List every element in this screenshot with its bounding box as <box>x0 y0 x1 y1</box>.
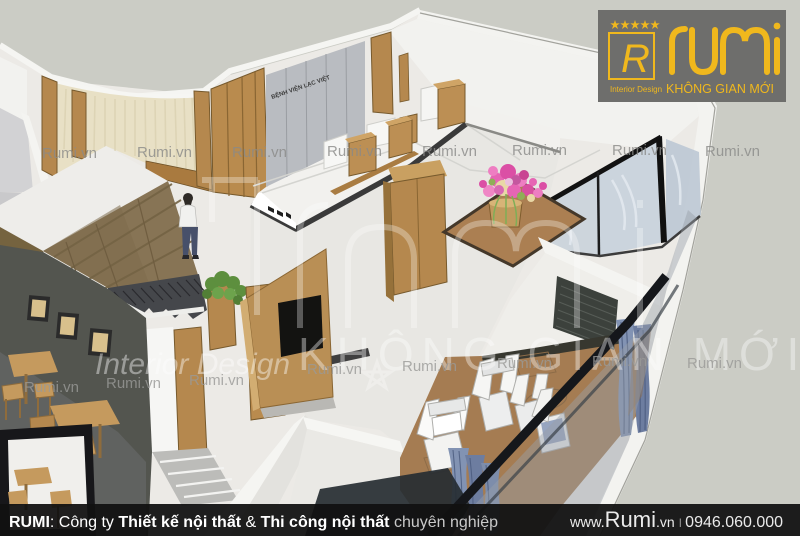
svg-text:Rumi.vn: Rumi.vn <box>189 372 244 389</box>
svg-text:Rumi.vn: Rumi.vn <box>42 145 97 162</box>
svg-text:Rumi.vn: Rumi.vn <box>687 355 742 372</box>
svg-text:Rumi.vn: Rumi.vn <box>497 355 552 372</box>
svg-text:Rumi.vn: Rumi.vn <box>232 144 287 161</box>
svg-text:Rumi.vn: Rumi.vn <box>106 375 161 392</box>
svg-text:Rumi.vn: Rumi.vn <box>612 142 667 159</box>
svg-text:R: R <box>621 37 650 81</box>
svg-text:Rumi.vn: Rumi.vn <box>512 142 567 159</box>
svg-text:Rumi.vn: Rumi.vn <box>327 143 382 160</box>
svg-text:RUMI: Công ty Thiết kế nội thấ: RUMI: Công ty Thiết kế nội thất & Thi cô… <box>9 514 498 531</box>
svg-text:Rumi.vn: Rumi.vn <box>307 361 362 378</box>
svg-text:Rumi.vn: Rumi.vn <box>402 358 457 375</box>
svg-text:KHÔNG GIAN MỚI: KHÔNG GIAN MỚI <box>298 328 800 380</box>
svg-text:Rumi.vn: Rumi.vn <box>592 353 647 370</box>
svg-text:Rumi.vn: Rumi.vn <box>24 379 79 396</box>
svg-text:Rumi.vn: Rumi.vn <box>137 144 192 161</box>
svg-text:Rumi.vn: Rumi.vn <box>705 143 760 160</box>
svg-text:KHÔNG GIAN MỚI: KHÔNG GIAN MỚI <box>666 81 774 96</box>
svg-text:Rumi.vn: Rumi.vn <box>422 143 477 160</box>
svg-text:Interior Design: Interior Design <box>610 85 662 94</box>
